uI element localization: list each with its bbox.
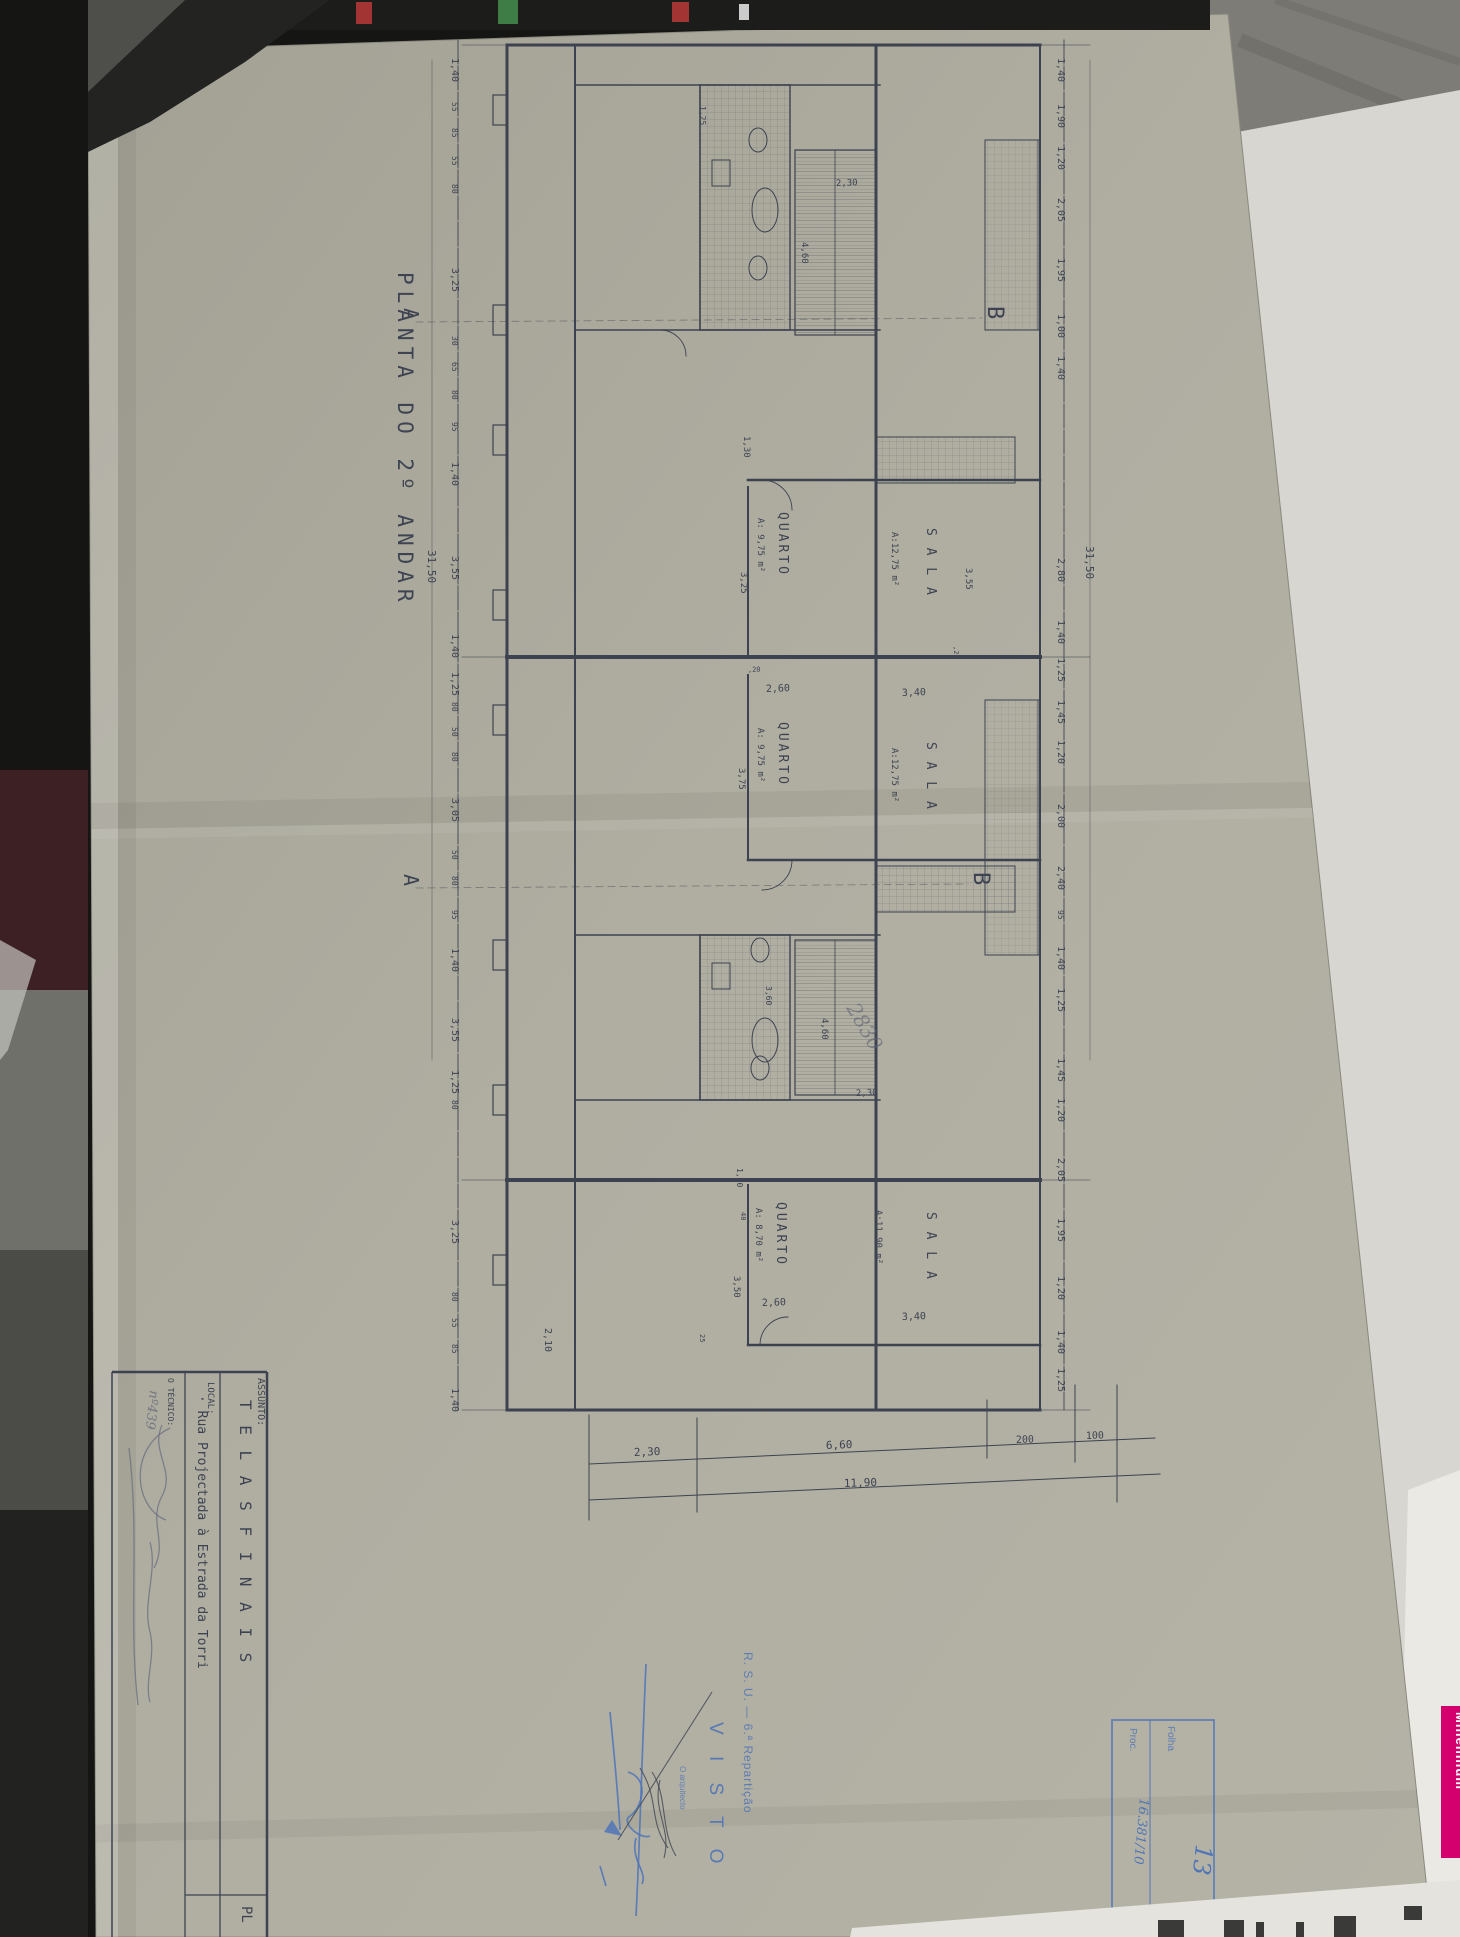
plan-text: B: [982, 306, 1007, 319]
visto-line2: V I S T O: [705, 1722, 726, 1871]
plan-text: A: 9,75 m²: [755, 728, 765, 782]
plan-text: A:11,90 m²: [873, 1210, 883, 1264]
blueprint-sheet: 1,40558555803,25306580951,403,551,401,25…: [80, 14, 1460, 1937]
plan-text: 31,50: [1083, 546, 1096, 579]
plan-text: 3,75: [736, 768, 746, 790]
white-chip: [739, 4, 749, 20]
plan-text: 1,40: [449, 948, 460, 972]
local-value: · Rua Projectada à Estrada da Torri: [194, 1395, 209, 1669]
tecnico-label: O TÉCNICO:: [166, 1378, 177, 1426]
plan-text: 95: [450, 910, 459, 920]
plan-text: 1,20: [1055, 1276, 1066, 1300]
photo-of-floor-plan: 1,40558555803,25306580951,403,551,401,25…: [0, 0, 1460, 1937]
plan-text: 1,25: [698, 106, 707, 125]
plan-text: 1,90: [1055, 104, 1066, 128]
plan-text: 1,40: [1055, 1330, 1066, 1354]
plan-text: 4,60: [799, 242, 809, 264]
sheet-title: PLANTA DO 2º ANDAR: [393, 272, 417, 608]
plan-text: 3,05: [449, 798, 460, 822]
plan-text: 1,40: [449, 1388, 460, 1412]
plan-text: S A L A: [923, 1212, 938, 1281]
folha-label: Folha: [1165, 1726, 1176, 1751]
plan-text: 1,40: [1055, 356, 1066, 380]
plan-text: 55: [450, 156, 459, 166]
plan-text: 1,40: [449, 58, 460, 82]
plan-text: S A L A: [923, 742, 938, 811]
plan-text: 3,55: [963, 568, 973, 590]
plan-text: 80: [450, 184, 459, 194]
dark-bottom-left: [0, 1510, 88, 1937]
plan-text: S A L A: [923, 528, 938, 597]
plan-text: ,20: [952, 646, 960, 659]
proc-label: Proc.: [1127, 1728, 1138, 1751]
plan-text: 2,60: [762, 1297, 786, 1309]
plan-text: 3,40: [902, 1311, 926, 1323]
plan-text: 2,10: [542, 1328, 553, 1352]
plan-text: 2,80: [1055, 558, 1066, 582]
plan-text: 2,60: [766, 683, 790, 695]
plan-text: 50: [450, 850, 459, 860]
plan-text: B: [968, 872, 993, 885]
plan-text: 80: [450, 702, 459, 712]
plan-text: 2,05: [1055, 1158, 1066, 1182]
plan-text: 3,25: [738, 572, 748, 594]
visto-line1: R. S. U. — 6.ª Repartição: [741, 1652, 755, 1814]
plan-text: 2,30: [856, 1088, 878, 1099]
plan-text: ,20: [748, 666, 761, 674]
plan-text: A: 8,70 m²: [753, 1208, 763, 1262]
brand-text: Millennium: [1453, 1712, 1460, 1790]
plan-text: 31,50: [425, 550, 438, 583]
plan-text: 1,40: [1055, 946, 1066, 970]
plan-text: 3,60: [764, 986, 773, 1005]
plan-text: 2,40: [1055, 866, 1066, 890]
plan-text: 3,25: [449, 268, 460, 292]
plan-text: 3,40: [902, 687, 926, 699]
assunto-label: ASSUNTO:: [255, 1378, 266, 1426]
plan-text: 1,25: [1055, 988, 1066, 1012]
plan-text: QUARTO: [775, 722, 790, 787]
folha-value: 13: [1187, 1843, 1218, 1876]
plan-text: 3,55: [449, 1018, 460, 1042]
plan-text: 4,60: [819, 1018, 829, 1040]
visto-line3: O arquitecto: [678, 1766, 687, 1810]
plan-text: A: [399, 874, 423, 886]
plan-text: 1,25: [1055, 658, 1066, 682]
plan-text: 1,40: [449, 462, 460, 486]
plan-text: 50: [450, 727, 459, 737]
plan-text: 1,25: [1055, 1368, 1066, 1392]
plan-text: 80: [450, 752, 459, 762]
plan-text: 1,30: [741, 436, 751, 458]
plan-text: 11,90: [844, 1476, 878, 1490]
plan-text: 55: [450, 102, 459, 112]
plan-text: 80: [450, 876, 459, 886]
green-chip: [498, 0, 518, 24]
plan-text: QUARTO: [775, 512, 790, 577]
plan-text: 3,25: [449, 1220, 460, 1244]
plan-text: A: 9,75 m²: [755, 518, 765, 572]
red-chip: [356, 2, 372, 24]
plan-text: 80: [450, 1100, 459, 1110]
plan-text: 1,00: [1055, 314, 1066, 338]
plan-text: 95: [1056, 910, 1065, 920]
plan-text: 85: [450, 1344, 459, 1354]
plan-text: 85: [450, 128, 459, 138]
plan-text: 1,25: [449, 1070, 460, 1094]
plan-text: 95: [450, 422, 459, 432]
plan-text: 1,20: [1055, 740, 1066, 764]
plan-text: 1,20: [1055, 1098, 1066, 1122]
red-chip-2: [672, 2, 689, 22]
plan-text: 80: [450, 1292, 459, 1302]
plan-text: 1,95: [1055, 1218, 1066, 1242]
plan-text: A:12,75 m²: [889, 748, 899, 802]
plan-text: 1,95: [1055, 258, 1066, 282]
plan-text: 6,60: [826, 1438, 853, 1452]
plan-text: 100: [1086, 1430, 1104, 1442]
plan-text: 55: [450, 1318, 459, 1328]
plan-text: 80: [450, 390, 459, 400]
plan-text: QUARTO: [773, 1202, 788, 1267]
plan-text: 1,25: [449, 672, 460, 696]
plan-text: 40: [739, 1212, 747, 1220]
plan-text: 2,30: [836, 178, 858, 189]
plan-text: 1,40: [1055, 58, 1066, 82]
plan-text: 2,30: [634, 1445, 661, 1459]
plan-text: 1,40: [1055, 620, 1066, 644]
titleblock-corner-text: PL: [238, 1906, 254, 1923]
plan-text: 1,45: [1055, 700, 1066, 724]
plan-text: 1,45: [1055, 1058, 1066, 1082]
plan-text: 3,50: [731, 1276, 741, 1298]
plan-text: 200: [1016, 1434, 1034, 1446]
plan-text: 30: [450, 336, 459, 346]
plan-text: 3,55: [449, 556, 460, 580]
plan-text: 2,05: [1055, 198, 1066, 222]
plan-text: A:12,75 m²: [889, 532, 899, 586]
gray-object-2: [0, 1250, 88, 1510]
plan-text: 65: [450, 362, 459, 372]
plan-text: 1,20: [1055, 146, 1066, 170]
assunto-value: T E L A S F I N A I S: [236, 1400, 255, 1665]
plan-text: 2,00: [1055, 804, 1066, 828]
plan-text: 1,10: [735, 1168, 744, 1187]
scene-svg: 1,40558555803,25306580951,403,551,401,25…: [0, 0, 1460, 1937]
plan-text: 25: [698, 1334, 706, 1342]
plan-text: 1,40: [449, 634, 460, 658]
